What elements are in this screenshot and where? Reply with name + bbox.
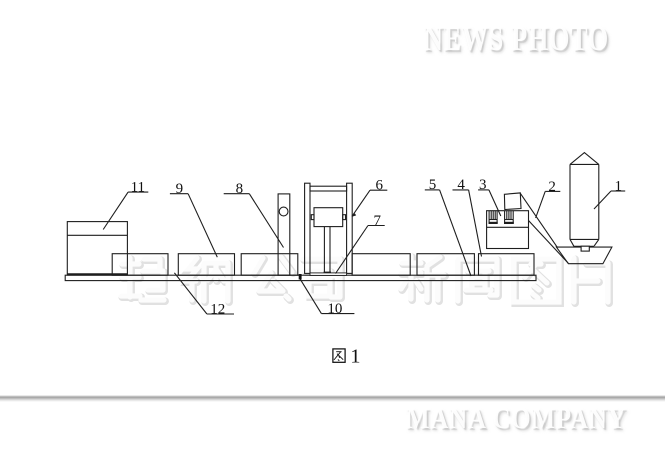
svg-text:7: 7 bbox=[374, 213, 382, 229]
svg-text:10: 10 bbox=[327, 301, 342, 317]
svg-text:11: 11 bbox=[131, 179, 145, 195]
svg-text:2: 2 bbox=[548, 179, 556, 195]
svg-text:1: 1 bbox=[350, 346, 360, 368]
svg-text:1: 1 bbox=[614, 179, 622, 195]
svg-text:8: 8 bbox=[236, 181, 244, 197]
svg-text:9: 9 bbox=[176, 181, 184, 197]
svg-text:5: 5 bbox=[429, 177, 437, 193]
svg-text:4: 4 bbox=[457, 177, 465, 193]
svg-text:6: 6 bbox=[376, 178, 384, 194]
svg-text:3: 3 bbox=[479, 177, 487, 193]
svg-text:12: 12 bbox=[210, 301, 225, 317]
